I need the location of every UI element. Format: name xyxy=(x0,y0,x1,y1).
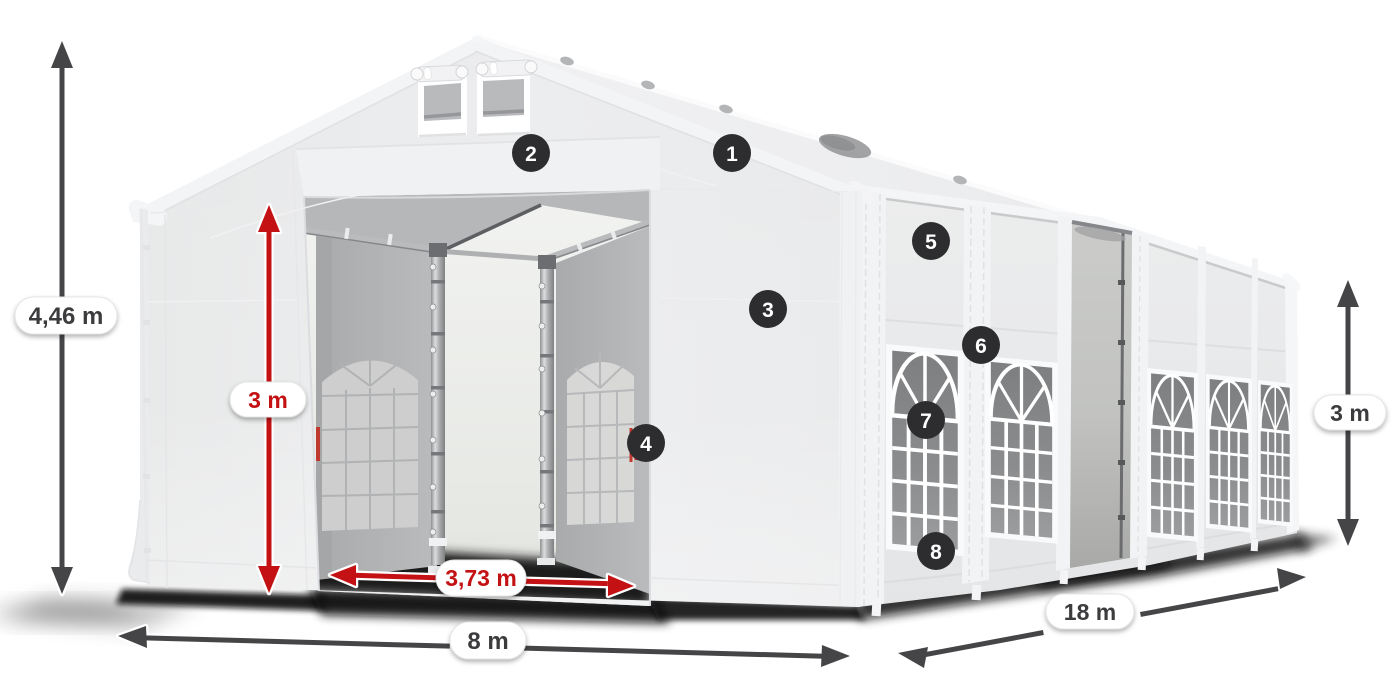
svg-text:3 m: 3 m xyxy=(1330,400,1370,426)
svg-text:8 m: 8 m xyxy=(467,628,508,655)
svg-text:8: 8 xyxy=(930,541,942,564)
svg-text:3 m: 3 m xyxy=(248,387,288,413)
svg-text:4,46 m: 4,46 m xyxy=(29,303,104,330)
svg-text:3,73 m: 3,73 m xyxy=(445,565,517,591)
svg-text:3: 3 xyxy=(762,299,774,322)
svg-text:6: 6 xyxy=(975,335,987,358)
svg-text:1: 1 xyxy=(726,143,738,166)
svg-text:4: 4 xyxy=(640,433,652,456)
svg-text:7: 7 xyxy=(920,410,932,433)
svg-text:5: 5 xyxy=(925,231,937,254)
svg-text:18 m: 18 m xyxy=(1064,599,1116,625)
svg-text:2: 2 xyxy=(525,143,537,166)
